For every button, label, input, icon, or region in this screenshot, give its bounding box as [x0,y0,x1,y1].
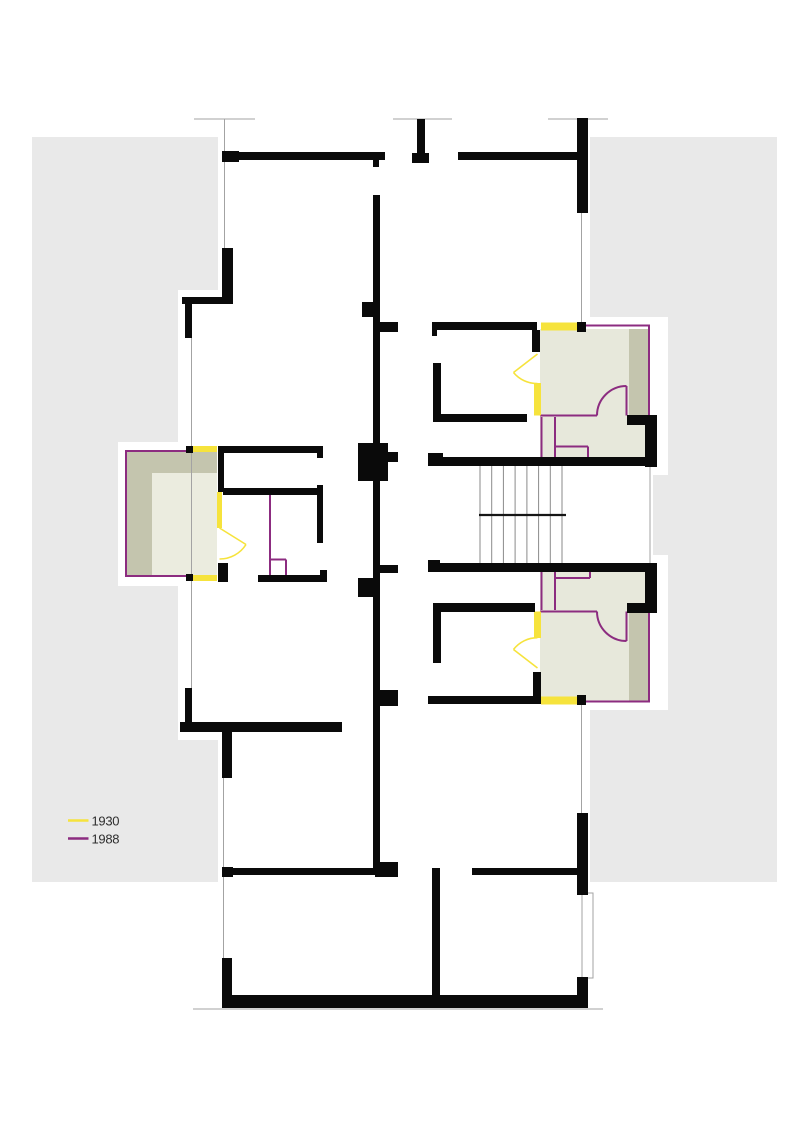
left-balcony [125,450,217,577]
legend-label-1988: 1988 [92,832,120,847]
stair-wall-north [428,457,655,466]
chimney [417,119,425,155]
legend-label-1930: 1930 [92,814,120,829]
spine-wall [373,195,380,875]
window-opening [582,893,593,978]
floor-plan: 1930 1988 [0,0,800,1135]
facade-wall-south [222,995,588,1008]
page: 1930 1988 [0,0,800,1135]
stair-wall-south [428,563,655,572]
upper-right-room [540,329,650,460]
lower-right-room [540,567,650,702]
